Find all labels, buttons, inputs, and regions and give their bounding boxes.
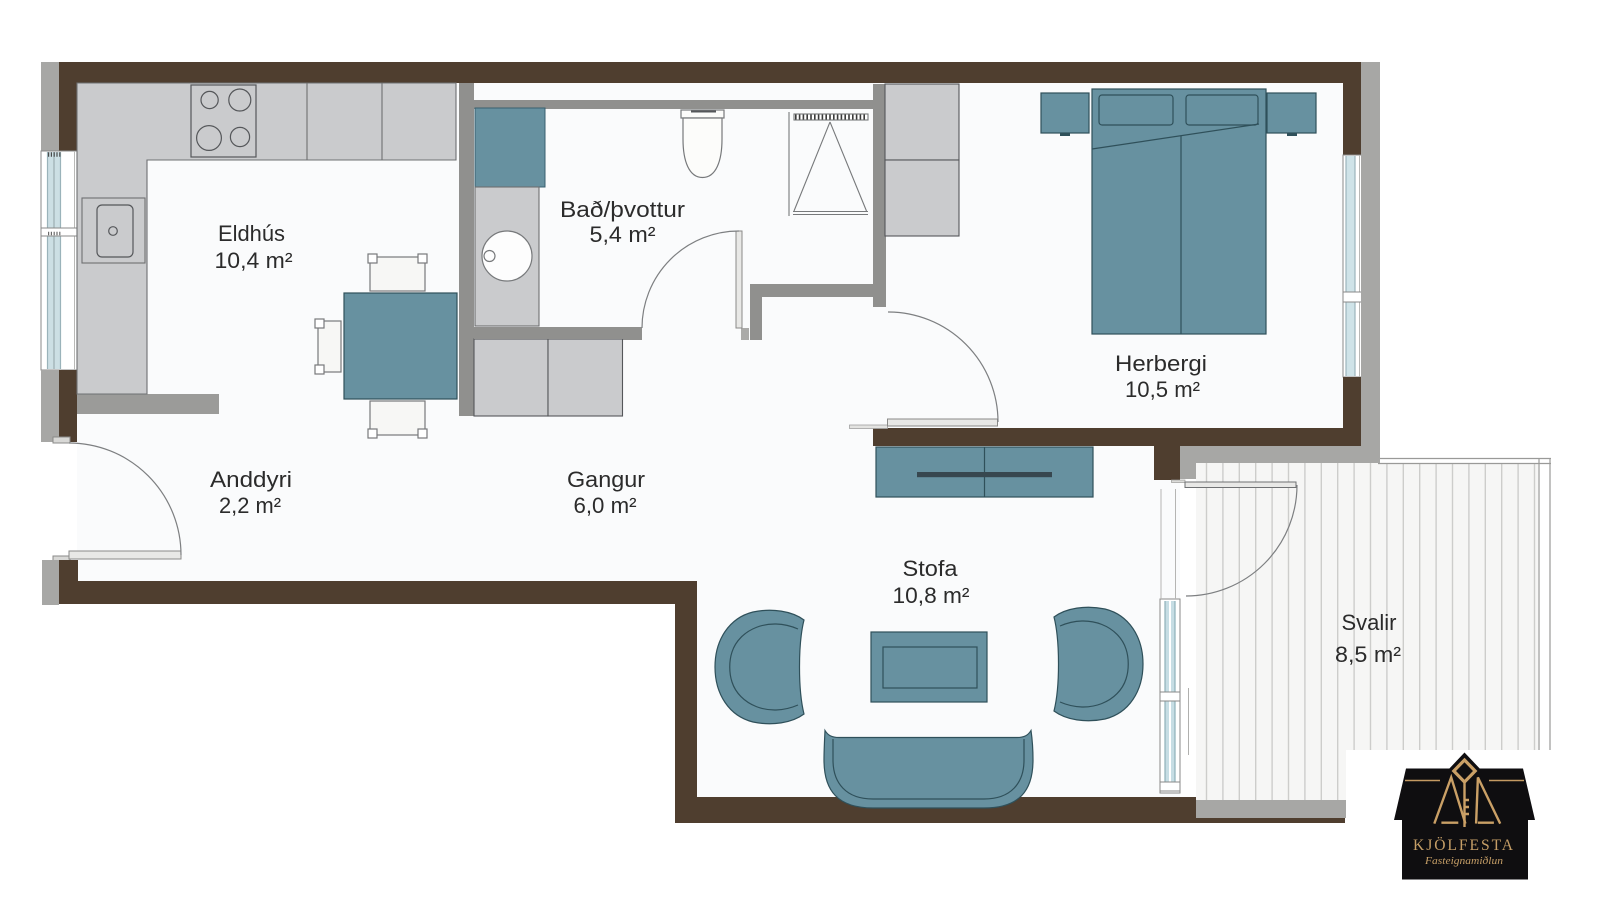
svg-text:Stofa: Stofa — [903, 556, 959, 581]
svg-text:Fasteignamiðlun: Fasteignamiðlun — [1424, 856, 1503, 867]
svg-text:KJÖLFESTA: KJÖLFESTA — [1413, 836, 1515, 854]
svg-text:10,8 m²: 10,8 m² — [893, 583, 970, 608]
svg-text:Herbergi: Herbergi — [1115, 351, 1207, 376]
svg-text:8,5 m²: 8,5 m² — [1335, 642, 1401, 667]
svg-text:10,5 m²: 10,5 m² — [1125, 377, 1200, 402]
svg-text:2,2 m²: 2,2 m² — [219, 493, 281, 518]
svg-text:Svalir: Svalir — [1342, 610, 1397, 635]
svg-text:6,0 m²: 6,0 m² — [574, 493, 637, 518]
svg-text:5,4 m²: 5,4 m² — [590, 222, 656, 247]
svg-text:Eldhús: Eldhús — [218, 221, 285, 246]
svg-text:Anddyri: Anddyri — [210, 467, 292, 492]
svg-text:Bað/þvottur: Bað/þvottur — [560, 197, 685, 222]
svg-text:10,4 m²: 10,4 m² — [215, 248, 293, 273]
svg-text:Gangur: Gangur — [567, 467, 645, 492]
